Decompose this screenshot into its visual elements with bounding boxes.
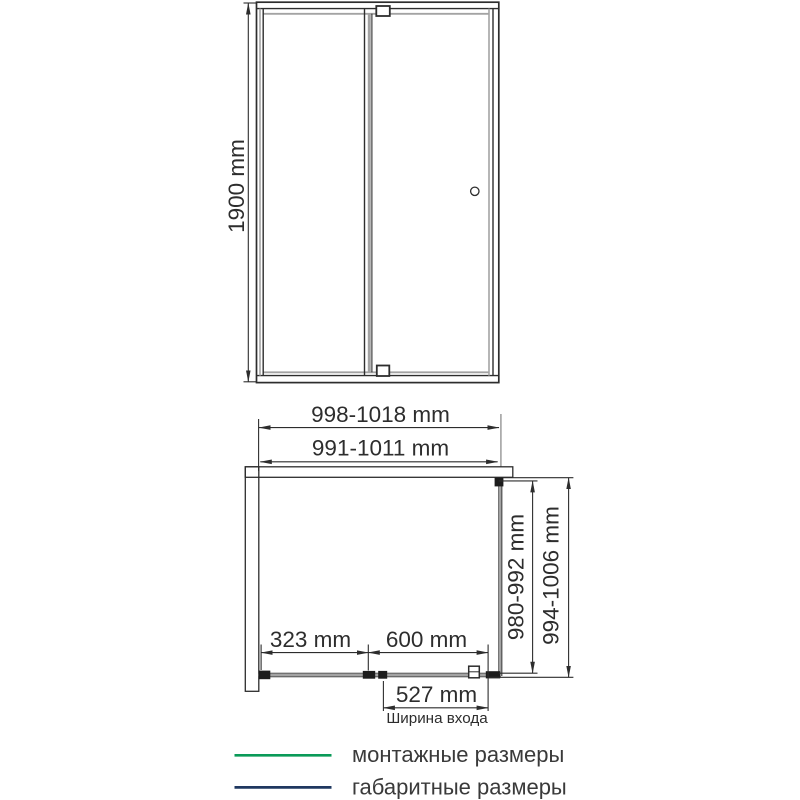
legend-mounting-label: монтажные размеры bbox=[352, 742, 564, 767]
entrance-caption: Ширина входа bbox=[386, 710, 488, 727]
pivot-hinge-plan bbox=[378, 671, 387, 679]
plan-view bbox=[245, 467, 513, 692]
door-knob bbox=[471, 187, 479, 195]
width-dimensions: 998-1018 mm 991-1011 mm bbox=[259, 402, 501, 471]
legend: монтажные размеры габаритные размеры bbox=[235, 742, 567, 800]
wall-top bbox=[245, 467, 513, 478]
shower-enclosure-drawing: 1900 mm 998-1018 mm 991-1011 mm bbox=[0, 0, 800, 800]
fixed-panel-width-label: 323 mm bbox=[270, 627, 351, 652]
front-elevation-view bbox=[257, 2, 499, 382]
wall-profile-left bbox=[259, 671, 271, 680]
overall-depth-label: 994-1006 mm bbox=[539, 506, 564, 645]
overall-width-label: 998-1018 mm bbox=[311, 402, 450, 427]
door-width-label: 600 mm bbox=[386, 627, 467, 652]
entrance-width-label: 527 mm bbox=[396, 682, 477, 707]
mounting-depth-label: 980-992 mm bbox=[503, 514, 528, 640]
wall-left bbox=[245, 467, 258, 692]
height-dimension: 1900 mm bbox=[224, 3, 257, 382]
technical-drawing-canvas: 1900 mm 998-1018 mm 991-1011 mm bbox=[0, 0, 800, 800]
pivot-hinge-bottom bbox=[377, 366, 390, 377]
door-outer-frame bbox=[257, 2, 499, 382]
center-profile bbox=[363, 671, 375, 679]
height-dim-label: 1900 mm bbox=[224, 139, 249, 233]
mounting-width-label: 991-1011 mm bbox=[312, 436, 449, 461]
legend-overall-label: габаритные размеры bbox=[352, 775, 567, 800]
pivot-hinge-top bbox=[376, 6, 390, 16]
wall-profile-top-right bbox=[495, 478, 504, 487]
